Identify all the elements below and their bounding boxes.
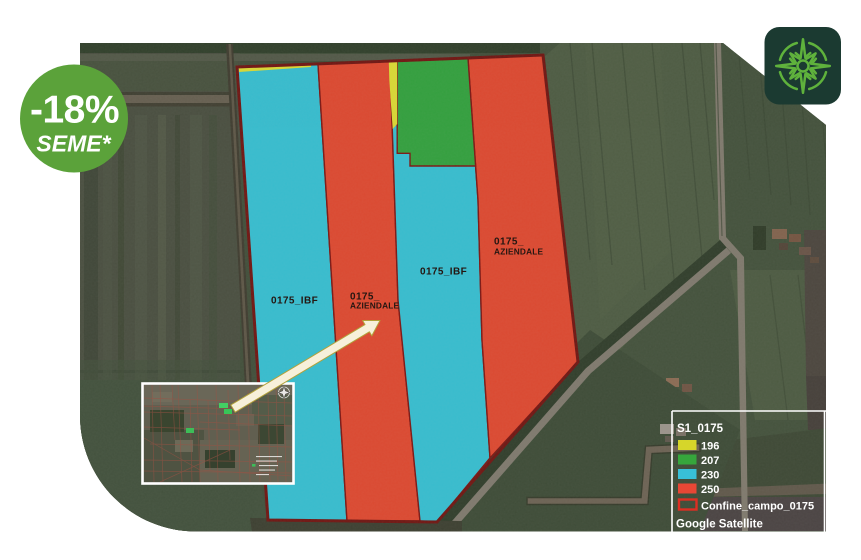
svg-text:SEME*: SEME* — [36, 131, 111, 157]
svg-text:250: 250 — [701, 484, 719, 496]
svg-text:Google Satellite: Google Satellite — [676, 519, 763, 531]
svg-text:230: 230 — [701, 470, 719, 482]
svg-text:S1_0175: S1_0175 — [677, 423, 724, 435]
svg-text:207: 207 — [701, 455, 719, 467]
svg-text:196: 196 — [701, 441, 719, 453]
svg-text:Confine_campo_0175: Confine_campo_0175 — [701, 501, 814, 513]
svg-text:-18%: -18% — [30, 89, 119, 132]
